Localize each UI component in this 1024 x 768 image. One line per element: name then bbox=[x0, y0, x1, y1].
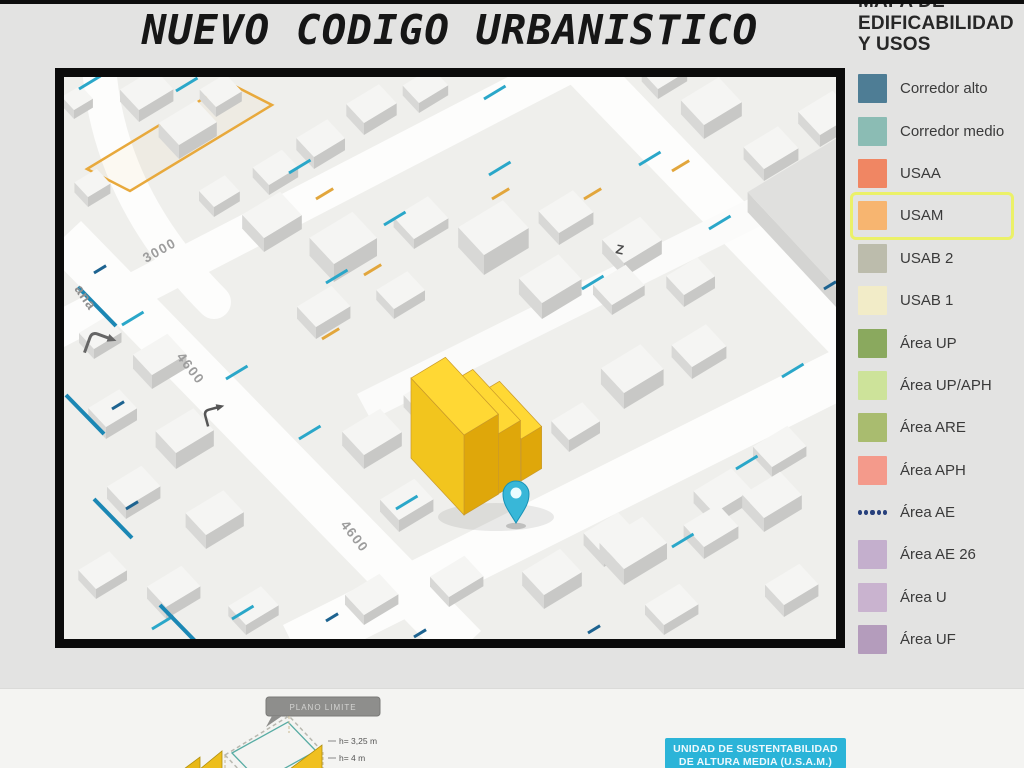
legend-item-area-up[interactable]: Área UP bbox=[856, 322, 1022, 364]
height-label-1: h= 3,25 m bbox=[339, 736, 377, 746]
color-swatch bbox=[858, 583, 887, 612]
dotted-swatch bbox=[858, 498, 887, 527]
map-legend: MAPA DE EDIFICABILIDAD Y USOS Corredor a… bbox=[856, 0, 1022, 661]
color-swatch bbox=[858, 74, 887, 103]
city-map-panel[interactable]: 3000 4600 4600 ana Z bbox=[55, 68, 845, 648]
legend-item-area-ae[interactable]: Área AE bbox=[856, 491, 1022, 533]
usam-box-line1: UNIDAD DE SUSTENTABILIDAD bbox=[665, 743, 846, 756]
legend-item-area-are[interactable]: Área ARE bbox=[856, 407, 1022, 449]
city-3d-map: 3000 4600 4600 ana Z bbox=[64, 77, 836, 639]
color-swatch bbox=[858, 540, 887, 569]
legend-item-usam[interactable]: USAM bbox=[856, 195, 1022, 237]
legend-item-area-aph[interactable]: Área APH bbox=[856, 449, 1022, 491]
color-swatch bbox=[858, 159, 887, 188]
color-swatch bbox=[858, 413, 887, 442]
legend-item-usab1[interactable]: USAB 1 bbox=[856, 279, 1022, 321]
legend-title-line3: Y USOS bbox=[858, 34, 1022, 56]
legend-title-line2: EDIFICABILIDAD bbox=[858, 13, 1022, 35]
height-label-2: h= 4 m bbox=[339, 753, 365, 763]
legend-item-corredor-medio[interactable]: Corredor medio bbox=[856, 110, 1022, 152]
legend-items: Corredor alto Corredor medio USAA USAM U… bbox=[856, 68, 1022, 661]
legend-item-usab2[interactable]: USAB 2 bbox=[856, 237, 1022, 279]
legend-item-area-ae-26[interactable]: Área AE 26 bbox=[856, 534, 1022, 576]
color-swatch bbox=[858, 201, 887, 230]
legend-item-area-u[interactable]: Área U bbox=[856, 576, 1022, 618]
yellow-building-section bbox=[200, 751, 222, 768]
legend-item-corredor-alto[interactable]: Corredor alto bbox=[856, 68, 1022, 110]
yellow-building-section bbox=[184, 757, 200, 768]
page-title: NUEVO CODIGO URBANISTICO bbox=[55, 6, 845, 54]
usam-title-box: UNIDAD DE SUSTENTABILIDAD DE ALTURA MEDI… bbox=[665, 738, 846, 768]
color-swatch bbox=[858, 117, 887, 146]
color-swatch bbox=[858, 625, 887, 654]
legend-item-area-up-aph[interactable]: Área UP/APH bbox=[856, 364, 1022, 406]
top-border-line bbox=[0, 0, 1024, 4]
usam-section-diagram: PLANO LIMITE h= 3,25 m h= 4 m bbox=[170, 689, 530, 768]
footer-panel: PLANO LIMITE h= 3,25 m h= 4 m UNIDAD DE … bbox=[0, 688, 1024, 768]
diagram-tag-label: PLANO LIMITE bbox=[289, 703, 356, 712]
yellow-building-section bbox=[290, 745, 322, 768]
color-swatch bbox=[858, 286, 887, 315]
usam-box-line2: DE ALTURA MEDIA (U.S.A.M.) bbox=[665, 756, 846, 768]
color-swatch bbox=[858, 456, 887, 485]
color-swatch bbox=[858, 244, 887, 273]
color-swatch bbox=[858, 329, 887, 358]
legend-item-area-uf[interactable]: Área UF bbox=[856, 619, 1022, 661]
color-swatch bbox=[858, 371, 887, 400]
legend-item-usaa[interactable]: USAA bbox=[856, 152, 1022, 194]
legend-title: MAPA DE EDIFICABILIDAD Y USOS bbox=[856, 0, 1022, 56]
